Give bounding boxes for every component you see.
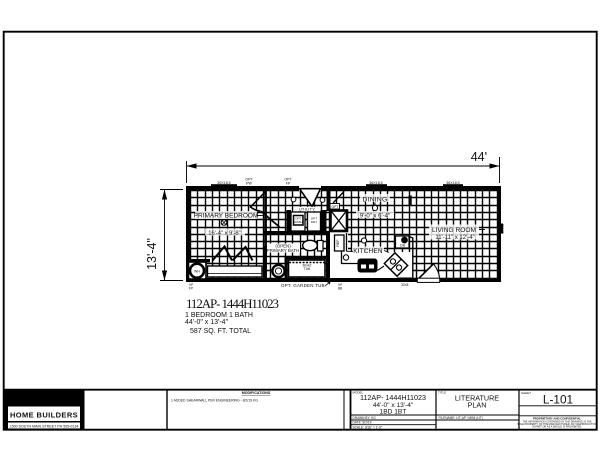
svg-text:FILENAME: LIT-AP / MINI (LIT): FILENAME: LIT-AP / MINI (LIT) xyxy=(439,416,483,420)
svg-text:13'-4": 13'-4" xyxy=(145,238,159,270)
svg-text:PRIMARY BEDROOM: PRIMARY BEDROOM xyxy=(194,213,259,220)
svg-text:36X58: 36X58 xyxy=(501,224,505,234)
svg-text:36X18.5: 36X18.5 xyxy=(446,181,459,185)
svg-text:44'-0" x 13'-4": 44'-0" x 13'-4" xyxy=(185,319,229,326)
svg-text:1500 SOUTH MAIN STREET PH 555: 1500 SOUTH MAIN STREET PH 555-0134 xyxy=(10,424,79,428)
svg-text:DATE: 8/2/19: DATE: 8/2/19 xyxy=(353,421,372,425)
svg-text:OPT. GARDEN TUB: OPT. GARDEN TUB xyxy=(281,283,325,288)
svg-text:1 BEDROOM 1 BATH: 1 BEDROOM 1 BATH xyxy=(185,312,253,319)
svg-text:11'-11" x 12'-4": 11'-11" x 12'-4" xyxy=(435,235,474,241)
svg-text:L-101: L-101 xyxy=(543,393,573,407)
svg-text:WH: WH xyxy=(194,269,200,273)
svg-text:HOME BUILDERS: HOME BUILDERS xyxy=(10,411,78,420)
svg-text:SHEET: SHEET xyxy=(521,391,531,395)
svg-text:TITLE: TITLE xyxy=(438,391,446,395)
svg-text:DRAWN BY: KG: DRAWN BY: KG xyxy=(353,416,377,420)
svg-text:REF: REF xyxy=(336,239,340,247)
svg-text:36X18.5: 36X18.5 xyxy=(369,181,382,185)
svg-text:LIVING ROOM: LIVING ROOM xyxy=(432,227,476,234)
svg-text:30X8: 30X8 xyxy=(401,283,409,287)
svg-text:KITCHEN: KITCHEN xyxy=(353,248,383,255)
svg-text:112AP- 1444H11023: 112AP- 1444H11023 xyxy=(186,296,279,311)
svg-text:1 ADDED SHEARWALL PER ENGINE: 1 ADDED SHEARWALL PER ENGINEERING - 8/2/… xyxy=(171,399,258,403)
svg-text:112AP- 1444H11023: 112AP- 1444H11023 xyxy=(360,393,426,402)
svg-text:UTILITY: UTILITY xyxy=(299,207,315,212)
svg-text:DINING: DINING xyxy=(363,197,388,204)
svg-text:FP: FP xyxy=(189,287,193,291)
svg-text:44': 44' xyxy=(471,150,487,164)
svg-text:IN PART OR AS A WHOLE IS PROHI: IN PART OR AS A WHOLE IS PROHIBITED. xyxy=(532,425,582,428)
svg-text:587 SQ. FT. TOTAL: 587 SQ. FT. TOTAL xyxy=(190,328,251,335)
svg-text:DRY: DRY xyxy=(311,220,317,224)
svg-text:1BD 1BT: 1BD 1BT xyxy=(380,408,407,415)
svg-text:PLAN: PLAN xyxy=(468,401,487,410)
svg-text:PW: PW xyxy=(246,181,252,185)
svg-text:MODIFICATIONS: MODIFICATIONS xyxy=(242,391,271,395)
svg-text:OPT: OPT xyxy=(332,205,339,209)
svg-text:BB: BB xyxy=(338,287,342,291)
svg-text:16'-4" x 9'-8": 16'-4" x 9'-8" xyxy=(208,231,240,237)
svg-text:TUB: TUB xyxy=(304,267,310,271)
svg-text:PRIMARY BATH: PRIMARY BATH xyxy=(267,248,299,253)
svg-text:30X18.5: 30X18.5 xyxy=(217,181,230,185)
svg-text:SCALE: 3/16" = 1'-0": SCALE: 3/16" = 1'-0" xyxy=(353,425,383,429)
svg-text:DB: DB xyxy=(400,244,406,248)
svg-text:FP: FP xyxy=(286,181,291,185)
svg-text:WASH: WASH xyxy=(294,220,303,224)
svg-text:9'-0" x 6'-4": 9'-0" x 6'-4" xyxy=(360,214,390,220)
